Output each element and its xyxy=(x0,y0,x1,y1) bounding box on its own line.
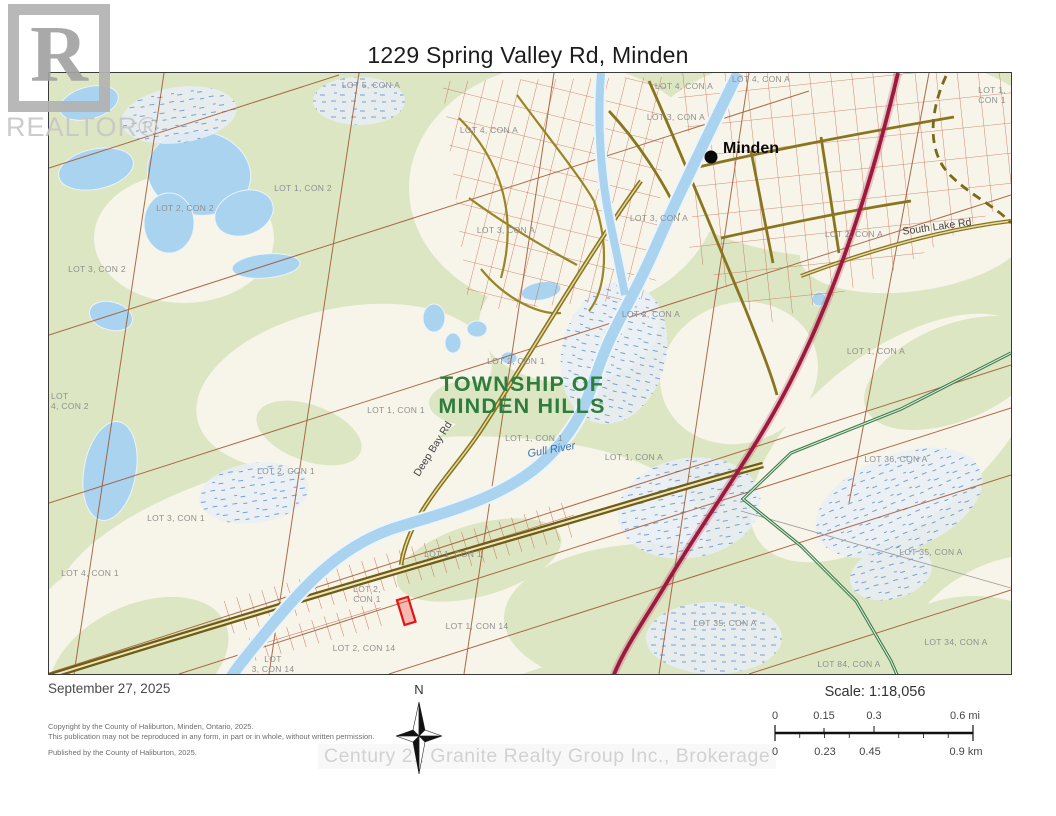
lot-label: LOT 84, CON A xyxy=(817,659,880,669)
compass-rose-icon xyxy=(396,702,442,774)
lot-label: LOT 4, CON A xyxy=(732,74,790,84)
map-canvas: TOWNSHIP OF MINDEN HILLS Minden Gull Riv… xyxy=(48,72,1012,675)
lot-label: LOT xyxy=(264,654,281,664)
lot-label: LOT 2, CON A xyxy=(622,309,680,319)
scale-text: Scale: 1:18,056 xyxy=(765,684,985,700)
lot-label: LOT 1, CON A xyxy=(605,452,663,462)
realtor-logo: R REALTOR® xyxy=(8,4,110,112)
lot-label: LOT 4, CON A xyxy=(655,81,713,91)
realtor-r-letter: R xyxy=(30,15,88,95)
township-label-line2: MINDEN HILLS xyxy=(438,394,605,418)
copyright-line1: Copyright by the County of Haliburton, M… xyxy=(48,722,254,731)
lot-label: LOT 34, CON A xyxy=(924,637,987,647)
town-name-label: Minden xyxy=(723,140,779,157)
lot-label: 4, CON 2 xyxy=(51,401,89,411)
lot-label: LOT 1, xyxy=(978,85,1006,95)
lot-label: CON 1 xyxy=(353,594,380,604)
lot-label: LOT 5, CON A xyxy=(342,80,400,90)
realtor-wordmark: REALTOR® xyxy=(6,112,159,143)
lot-label: LOT 3, CON A xyxy=(477,225,535,235)
north-label: N xyxy=(414,682,423,697)
lot-label: LOT 2, CON A xyxy=(825,229,883,239)
lot-label: LOT 1, CON 1 xyxy=(505,433,563,443)
lot-label: LOT 2, CON 2 xyxy=(156,203,214,213)
brokerage-watermark: Century 21 Granite Realty Group Inc., Br… xyxy=(318,744,776,769)
lot-label: LOT 3, CON A xyxy=(647,112,705,122)
north-arrow: N xyxy=(389,680,449,780)
lot-label: LOT 36, CON A xyxy=(864,454,927,464)
page: 1229 Spring Valley Rd, Minden xyxy=(0,0,1056,816)
lot-label: LOT 1, CON A xyxy=(847,346,905,356)
lot-label: 3, CON 14 xyxy=(252,664,295,674)
realtor-r-icon: R xyxy=(8,4,110,112)
scale-km-2: 0.45 xyxy=(859,746,880,758)
lot-label: LOT 3, CON 1 xyxy=(147,513,205,523)
township-label-line1: TOWNSHIP OF xyxy=(440,372,604,396)
lot-label: LOT 35, CON A xyxy=(693,618,756,628)
map-date: September 27, 2025 xyxy=(48,681,170,696)
lot-label: LOT 2, CON 14 xyxy=(333,643,396,653)
lot-label: LOT 1, CON 14 xyxy=(446,621,509,631)
lot-label: LOT 1, CON 1 xyxy=(424,549,482,559)
scale-bar-line xyxy=(775,725,973,741)
scale-km-0: 0 xyxy=(772,746,778,758)
scale-bar: 0 0.15 0.3 0.6 mi 0 0.23 0.45 0.9 km xyxy=(763,703,987,761)
map-svg: TOWNSHIP OF MINDEN HILLS Minden Gull Riv… xyxy=(49,73,1011,674)
copyright-line2: This publication may not be reproduced i… xyxy=(48,732,374,741)
lot-label: LOT 3, CON 2 xyxy=(68,264,126,274)
lot-label: LOT 3, CON A xyxy=(630,213,688,223)
lot-label: LOT xyxy=(51,391,68,401)
scale-km-3: 0.9 km xyxy=(949,746,982,758)
scale-km-1: 0.23 xyxy=(814,746,835,758)
lot-label: LOT 1, CON 1 xyxy=(367,405,425,415)
scale-km-labels: 0 0.23 0.45 0.9 km xyxy=(772,746,983,758)
published-text: Published by the County of Haliburton, 2… xyxy=(48,748,197,757)
lot-label: LOT 2, CON 1 xyxy=(487,356,545,366)
scale-mi-3: 0.6 mi xyxy=(950,710,980,722)
copyright-text: Copyright by the County of Haliburton, M… xyxy=(48,722,374,741)
scale-mi-1: 0.15 xyxy=(813,710,834,722)
scale-mi-2: 0.3 xyxy=(866,710,881,722)
lot-label: LOT 2, CON 1 xyxy=(257,466,315,476)
lot-label: LOT 4, CON A xyxy=(460,125,518,135)
scale-mi-labels: 0 0.15 0.3 0.6 mi xyxy=(772,710,980,722)
lot-label: LOT 1, CON 2 xyxy=(274,183,332,193)
page-title: 1229 Spring Valley Rd, Minden xyxy=(0,42,1056,69)
lot-label: CON 1 xyxy=(978,95,1005,105)
lot-label: LOT 35, CON A xyxy=(899,547,962,557)
scale-mi-0: 0 xyxy=(772,710,778,722)
lot-label: LOT 2, xyxy=(353,584,381,594)
lot-label: LOT 4, CON 1 xyxy=(61,568,119,578)
minden-town-dot xyxy=(705,151,718,164)
